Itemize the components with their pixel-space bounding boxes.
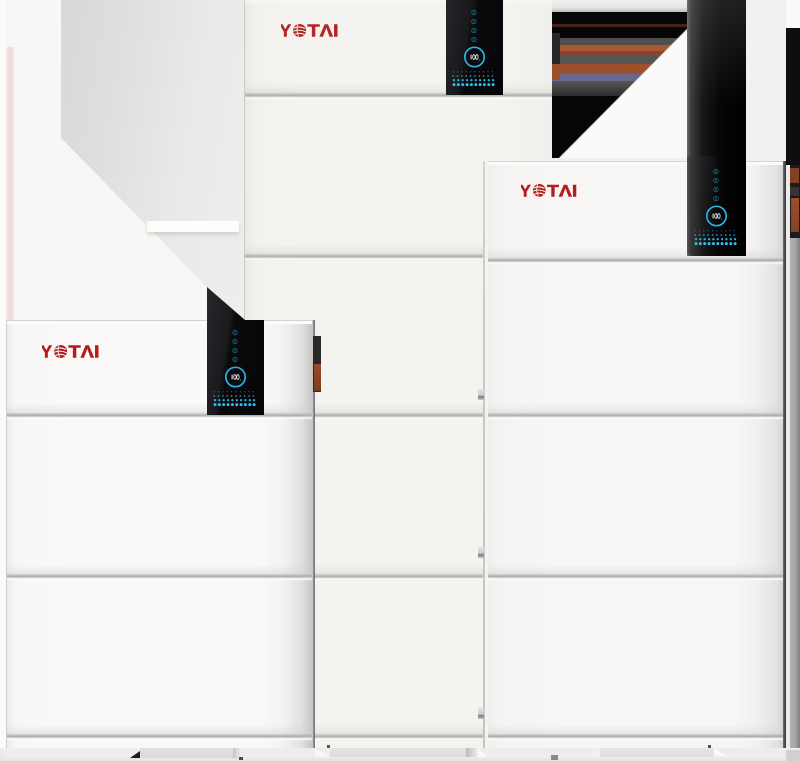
- svg-text:TΛI: TΛI: [69, 345, 100, 358]
- svg-text:Y: Y: [42, 345, 53, 358]
- svg-text:TΛI: TΛI: [547, 184, 577, 197]
- svg-text:Y: Y: [521, 184, 532, 197]
